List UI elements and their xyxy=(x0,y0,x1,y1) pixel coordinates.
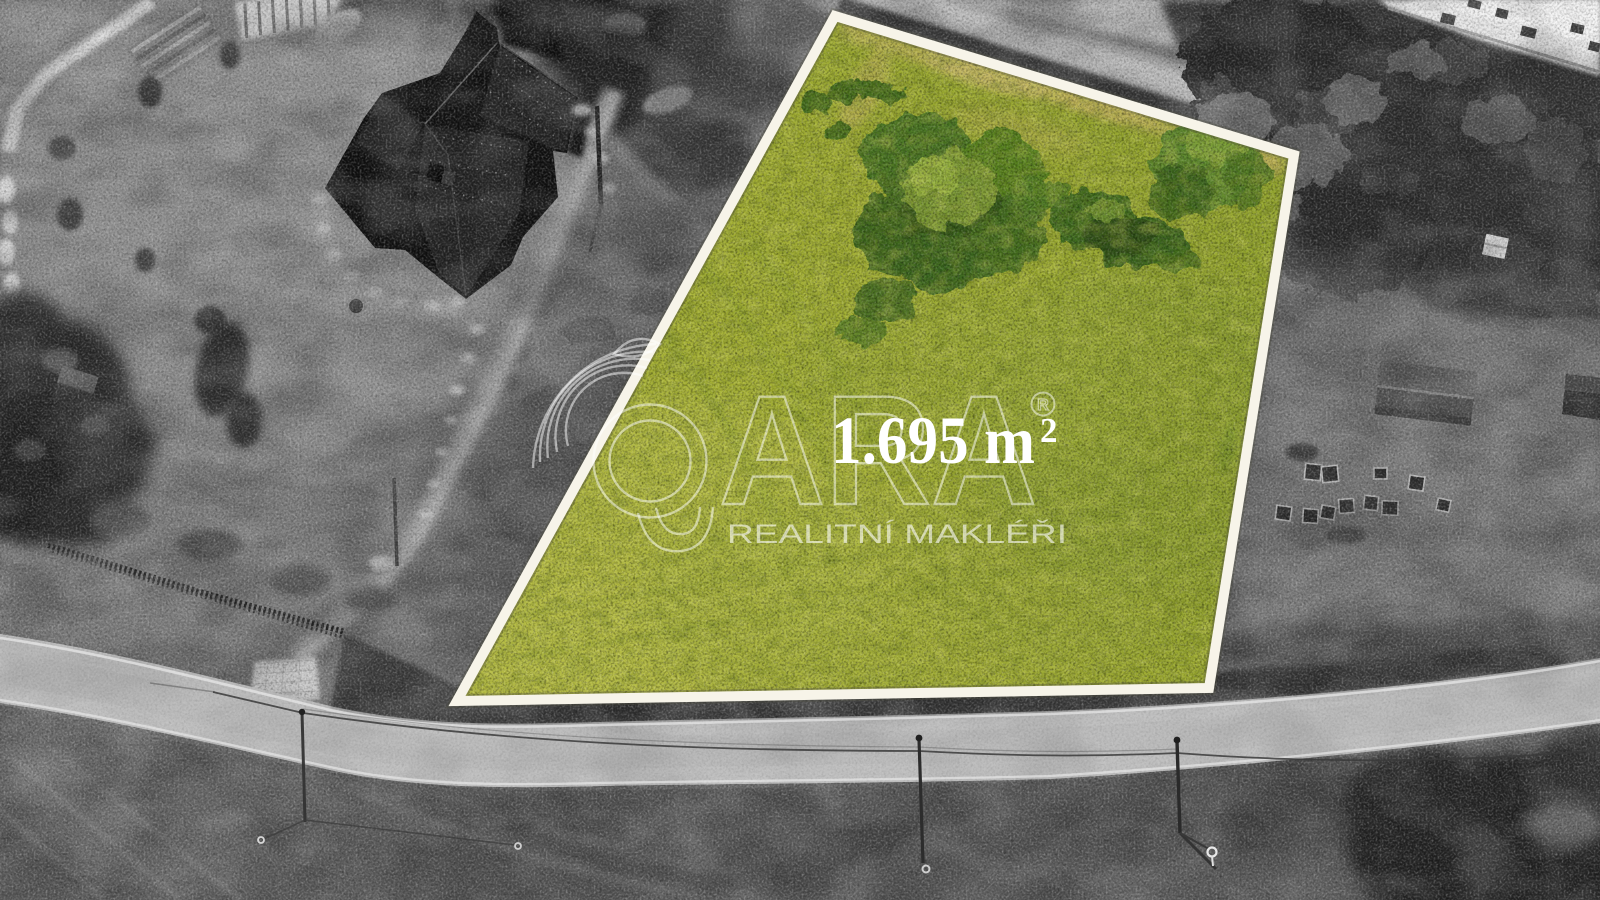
svg-text:1.695 m: 1.695 m xyxy=(831,402,1035,478)
svg-text:2: 2 xyxy=(1040,411,1058,450)
svg-text:REALITNÍ MAKLÉŘI: REALITNÍ MAKLÉŘI xyxy=(727,518,1067,549)
